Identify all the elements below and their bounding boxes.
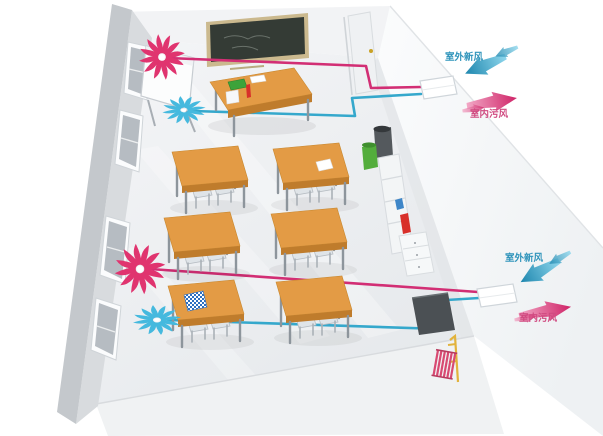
window	[115, 110, 143, 172]
door-handle	[369, 49, 373, 53]
ventilation-diagram-canvas: 室外新风 室内污风 室外新风 室内污风	[0, 0, 603, 436]
dark-cabinet	[412, 293, 455, 335]
exhaust-air-label-bottom: 室内污风	[519, 312, 558, 324]
fresh-air-label-bottom: 室外新风	[505, 252, 544, 264]
classroom-ventilation-diagram: 室外新风 室内污风 室外新风 室内污风	[0, 0, 603, 436]
green-bin	[362, 144, 378, 170]
checkered-book	[184, 291, 207, 311]
window	[91, 298, 121, 360]
trash-can-lid	[374, 126, 391, 132]
fresh-air-label-top: 室外新风	[445, 51, 484, 63]
exhaust-air-label-top: 室内污风	[470, 108, 509, 120]
white-box	[226, 90, 239, 104]
